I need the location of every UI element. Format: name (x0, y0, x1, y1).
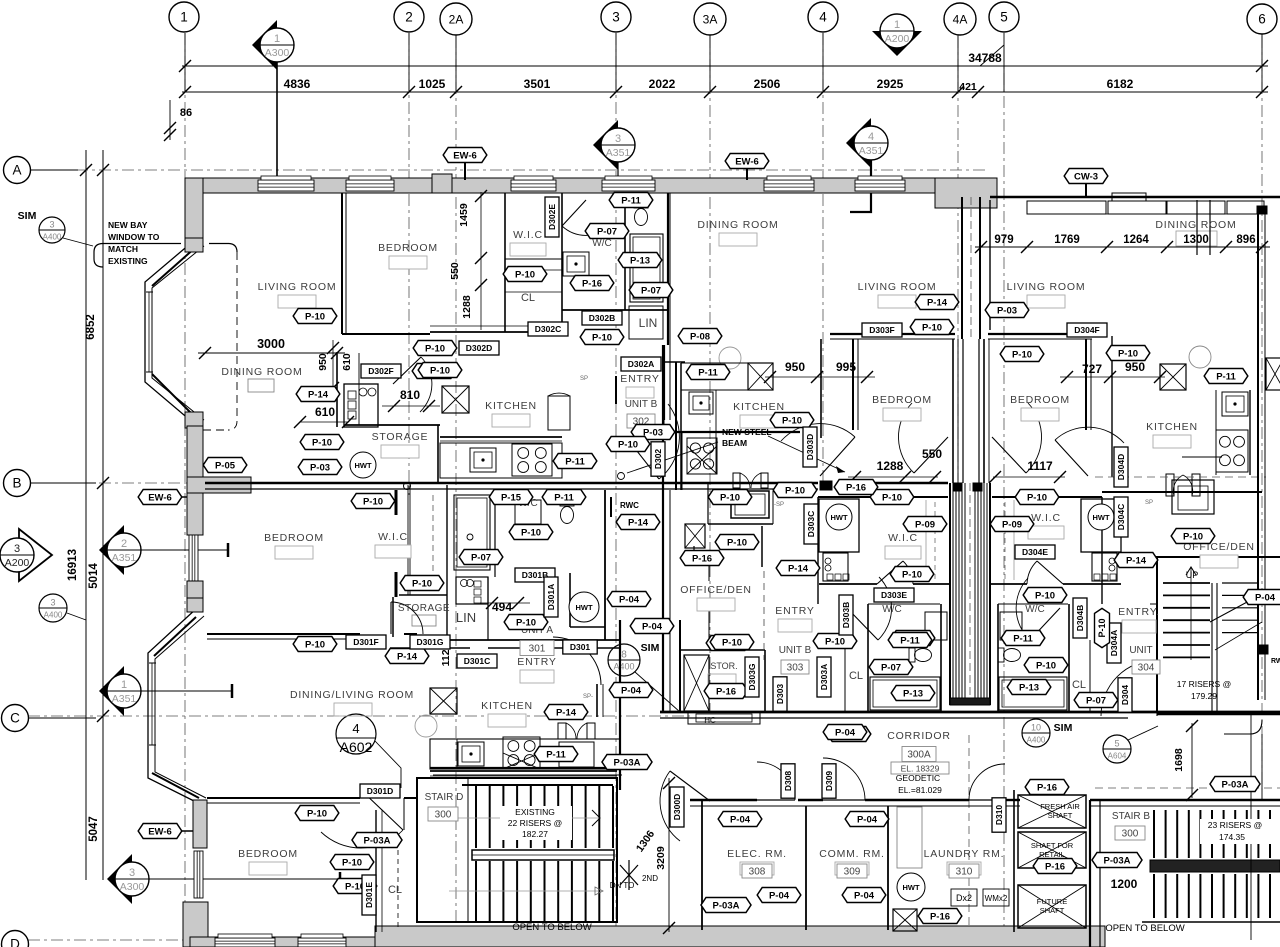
svg-text:6: 6 (1258, 12, 1266, 27)
svg-text:P-10: P-10 (618, 439, 638, 450)
svg-text:1769: 1769 (1054, 234, 1080, 246)
svg-text:CORRIDOR: CORRIDOR (887, 730, 951, 742)
svg-text:550: 550 (449, 262, 461, 280)
svg-text:182.27: 182.27 (522, 829, 548, 839)
svg-text:EXISTING: EXISTING (108, 256, 148, 266)
svg-text:HWT: HWT (830, 513, 847, 522)
svg-text:EXISTING: EXISTING (515, 807, 555, 817)
svg-text:P-03A: P-03A (1104, 855, 1131, 866)
svg-text:-SP: -SP (774, 502, 784, 508)
svg-text:P-07: P-07 (641, 285, 661, 296)
svg-text:1: 1 (894, 19, 900, 31)
svg-text:D309: D309 (824, 771, 834, 792)
svg-text:4: 4 (352, 721, 359, 736)
svg-text:P-10: P-10 (1118, 348, 1138, 359)
svg-text:STORAGE: STORAGE (398, 603, 450, 614)
svg-text:3: 3 (612, 10, 620, 25)
svg-text:P-15: P-15 (501, 492, 522, 503)
svg-text:2ND: 2ND (642, 874, 658, 883)
svg-text:D303C: D303C (806, 511, 816, 537)
svg-text:P-14: P-14 (556, 707, 577, 718)
svg-text:995: 995 (836, 360, 856, 374)
svg-text:303: 303 (787, 663, 804, 674)
svg-text:P-10: P-10 (720, 492, 740, 503)
svg-text:P-14: P-14 (1126, 555, 1147, 566)
svg-text:309: 309 (844, 867, 861, 878)
svg-text:Dx2: Dx2 (956, 893, 972, 903)
svg-text:3209: 3209 (655, 846, 667, 870)
svg-text:P-10: P-10 (782, 415, 802, 426)
svg-text:979: 979 (994, 234, 1013, 246)
svg-text:D301A: D301A (546, 584, 556, 610)
svg-text:8: 8 (621, 650, 627, 661)
svg-text:P-03A: P-03A (713, 900, 740, 911)
svg-text:D310: D310 (994, 805, 1004, 826)
svg-text:P-09: P-09 (1002, 519, 1022, 530)
svg-text:P-13: P-13 (1019, 682, 1039, 693)
svg-text:P-10: P-10 (515, 269, 535, 280)
svg-text:A400: A400 (1027, 736, 1046, 745)
svg-text:P-10: P-10 (521, 527, 541, 538)
svg-text:D301F: D301F (353, 637, 379, 647)
svg-text:CL: CL (388, 884, 402, 896)
svg-text:1: 1 (180, 10, 188, 25)
svg-text:SP-: SP- (583, 694, 593, 700)
svg-text:HC: HC (704, 716, 716, 725)
svg-text:EW-6: EW-6 (148, 826, 172, 837)
svg-text:SHAFT FOR: SHAFT FOR (1031, 841, 1074, 850)
svg-text:1: 1 (121, 679, 127, 691)
svg-text:P-11: P-11 (1216, 371, 1236, 382)
svg-text:D303E: D303E (881, 590, 907, 600)
svg-text:3: 3 (615, 133, 621, 145)
svg-text:COMM. RM.: COMM. RM. (819, 848, 885, 860)
svg-text:P-03A: P-03A (1222, 779, 1249, 790)
svg-text:P-10: P-10 (305, 311, 325, 322)
svg-text:CW-3: CW-3 (1074, 171, 1098, 182)
svg-text:P-10: P-10 (363, 496, 383, 507)
svg-text:P-10: P-10 (425, 343, 445, 354)
svg-text:ENTRY: ENTRY (517, 656, 556, 668)
svg-text:SIM: SIM (641, 642, 660, 654)
svg-text:D301G: D301G (417, 637, 444, 647)
svg-text:308: 308 (749, 867, 766, 878)
svg-text:P-10: P-10 (305, 639, 325, 650)
svg-text:810: 810 (400, 388, 420, 402)
svg-text:CL: CL (849, 670, 863, 682)
svg-text:RWC: RWC (620, 501, 639, 510)
svg-text:KITCHEN: KITCHEN (481, 700, 533, 712)
svg-text:A351: A351 (112, 552, 137, 564)
svg-text:3501: 3501 (524, 77, 551, 91)
svg-text:P-10: P-10 (722, 637, 742, 648)
svg-text:SP: SP (1145, 500, 1153, 506)
svg-text:950: 950 (785, 360, 805, 374)
svg-text:5014: 5014 (88, 563, 100, 589)
svg-text:P-03A: P-03A (614, 757, 641, 768)
svg-text:W.I.C: W.I.C (1031, 512, 1061, 524)
svg-text:UNIT: UNIT (1129, 645, 1152, 656)
svg-text:D304B: D304B (1075, 605, 1085, 631)
svg-text:W.I.C: W.I.C (888, 532, 918, 544)
svg-text:P-03: P-03 (997, 305, 1017, 316)
svg-text:P-04: P-04 (642, 621, 663, 632)
svg-text:D302D: D302D (466, 343, 492, 353)
svg-text:P-05: P-05 (215, 460, 236, 471)
svg-text:3: 3 (14, 543, 20, 555)
svg-text:P-10: P-10 (592, 332, 612, 343)
svg-text:D303D: D303D (805, 434, 815, 460)
svg-text:A400: A400 (43, 233, 62, 242)
svg-text:D303F: D303F (869, 325, 895, 335)
svg-text:UNIT B: UNIT B (779, 645, 812, 656)
svg-text:2022: 2022 (649, 77, 676, 91)
svg-text:P-04: P-04 (619, 594, 640, 605)
svg-text:310: 310 (956, 867, 973, 878)
svg-text:2A: 2A (449, 13, 464, 27)
svg-text:ENTRY: ENTRY (620, 373, 659, 385)
svg-text:1264: 1264 (1123, 234, 1149, 246)
svg-text:5: 5 (1114, 739, 1119, 749)
svg-text:EL. 18329: EL. 18329 (901, 764, 940, 774)
svg-text:4A: 4A (953, 13, 968, 27)
svg-text:P-07: P-07 (881, 662, 901, 673)
svg-text:HWT: HWT (902, 883, 919, 892)
svg-text:P-14: P-14 (308, 389, 329, 400)
svg-text:4: 4 (868, 131, 874, 143)
svg-text:5047: 5047 (88, 816, 100, 842)
svg-text:D303B: D303B (841, 602, 851, 628)
svg-text:HWT: HWT (575, 603, 592, 612)
svg-text:P-13: P-13 (630, 255, 650, 266)
svg-text:22 RISERS @: 22 RISERS @ (508, 818, 562, 828)
svg-text:CL: CL (1072, 679, 1086, 691)
svg-text:STAIR D: STAIR D (425, 792, 464, 803)
svg-text:DINING ROOM: DINING ROOM (221, 366, 302, 378)
svg-text:P-04: P-04 (1255, 592, 1276, 603)
svg-text:DINING/LIVING ROOM: DINING/LIVING ROOM (290, 689, 414, 701)
svg-text:6852: 6852 (85, 314, 97, 340)
svg-text:P-11: P-11 (1013, 633, 1033, 644)
svg-text:W/C: W/C (592, 238, 611, 249)
svg-text:300: 300 (435, 810, 452, 821)
svg-text:SIM: SIM (1054, 722, 1073, 734)
svg-text:LAUNDRY RM.: LAUNDRY RM. (924, 848, 1005, 860)
svg-text:D300D: D300D (672, 794, 682, 820)
svg-text:1288: 1288 (461, 295, 473, 319)
svg-text:P-14: P-14 (397, 651, 418, 662)
svg-text:OPEN TO BELOW: OPEN TO BELOW (512, 922, 591, 933)
svg-text:D302F: D302F (368, 366, 394, 376)
svg-text:BEDROOM: BEDROOM (238, 848, 298, 860)
svg-text:A351: A351 (859, 145, 884, 157)
svg-text:A604: A604 (1108, 752, 1127, 761)
svg-text:BEAM: BEAM (722, 438, 747, 448)
svg-text:P-10: P-10 (1036, 660, 1056, 671)
svg-text:A200: A200 (885, 33, 910, 45)
svg-text:ENTRY.: ENTRY. (1118, 606, 1160, 618)
svg-text:P-11: P-11 (554, 492, 574, 503)
svg-text:1288: 1288 (877, 459, 904, 473)
svg-text:A602: A602 (340, 739, 373, 755)
svg-text:OPEN TO BELOW: OPEN TO BELOW (1105, 923, 1184, 934)
svg-text:1117: 1117 (1027, 459, 1053, 473)
svg-text:D304F: D304F (1074, 325, 1100, 335)
svg-text:2506: 2506 (754, 77, 781, 91)
svg-text:P-16: P-16 (582, 278, 602, 289)
svg-text:D308: D308 (783, 771, 793, 792)
svg-text:3: 3 (50, 598, 55, 608)
svg-text:P-11: P-11 (621, 195, 641, 206)
svg-text:4: 4 (819, 10, 827, 25)
svg-text:NEW BAY: NEW BAY (108, 220, 148, 230)
svg-text:LIVING ROOM: LIVING ROOM (258, 281, 337, 293)
svg-text:5: 5 (1000, 10, 1008, 25)
svg-text:D303G: D303G (747, 663, 757, 690)
svg-text:1200: 1200 (1111, 877, 1138, 891)
svg-text:A400: A400 (44, 611, 63, 620)
svg-text:3000: 3000 (257, 337, 285, 351)
svg-text:P-03A: P-03A (364, 835, 391, 846)
svg-text:P-04: P-04 (857, 814, 878, 825)
svg-text:P-10: P-10 (1027, 492, 1047, 503)
svg-text:P-11: P-11 (565, 456, 585, 467)
svg-text:ENTRY: ENTRY (775, 605, 814, 617)
svg-text:A: A (12, 163, 21, 178)
svg-text:STORAGE: STORAGE (372, 431, 429, 443)
svg-text:A300: A300 (265, 47, 290, 59)
svg-text:1300: 1300 (1183, 234, 1209, 246)
svg-text:4836: 4836 (284, 77, 311, 91)
svg-text:P-07: P-07 (597, 226, 617, 237)
svg-text:STOR.: STOR. (710, 661, 737, 671)
svg-text:SP: SP (580, 376, 588, 382)
svg-text:P-04: P-04 (769, 890, 790, 901)
svg-text:W.I.C: W.I.C (513, 229, 543, 241)
svg-text:1025: 1025 (419, 77, 446, 91)
svg-text:P-13: P-13 (903, 688, 923, 699)
svg-text:950: 950 (1125, 360, 1145, 374)
svg-text:P-04: P-04 (854, 890, 875, 901)
svg-text:421: 421 (959, 81, 977, 93)
svg-text:P-10: P-10 (342, 857, 362, 868)
svg-text:179.29: 179.29 (1191, 691, 1217, 701)
svg-text:P-04: P-04 (730, 814, 751, 825)
svg-text:LIVING ROOM: LIVING ROOM (1007, 281, 1086, 293)
svg-text:MATCH: MATCH (108, 244, 138, 254)
svg-text:W.I.C: W.I.C (378, 531, 408, 543)
svg-text:P-07: P-07 (1086, 695, 1106, 706)
svg-text:2: 2 (405, 10, 413, 25)
svg-text:A351: A351 (112, 693, 137, 705)
svg-text:CL: CL (521, 292, 535, 304)
svg-text:P-14: P-14 (788, 563, 809, 574)
svg-text:1: 1 (274, 33, 280, 45)
svg-text:P-11: P-11 (900, 635, 920, 646)
svg-text:D302E: D302E (547, 204, 557, 230)
svg-text:GEODETIC: GEODETIC (896, 773, 940, 783)
svg-text:KITCHEN: KITCHEN (733, 401, 785, 413)
svg-text:P-10: P-10 (785, 485, 805, 496)
svg-text:P-11: P-11 (546, 749, 566, 760)
svg-text:NEW STEEL: NEW STEEL (722, 427, 772, 437)
svg-text:D: D (10, 937, 20, 947)
svg-text:727: 727 (1082, 362, 1102, 376)
svg-text:P-08: P-08 (690, 331, 710, 342)
svg-text:A351: A351 (606, 147, 631, 159)
svg-text:D303A: D303A (819, 664, 829, 690)
svg-text:P-10: P-10 (412, 578, 432, 589)
svg-text:LIVING ROOM: LIVING ROOM (858, 281, 937, 293)
svg-text:KITCHEN: KITCHEN (485, 400, 537, 412)
svg-text:EW-6: EW-6 (735, 156, 759, 167)
svg-text:3: 3 (49, 220, 54, 230)
svg-text:FRESH AIR: FRESH AIR (1040, 802, 1080, 811)
svg-text:D304: D304 (1120, 685, 1130, 706)
svg-text:D304E: D304E (1022, 547, 1048, 557)
svg-text:P-04: P-04 (621, 685, 642, 696)
svg-text:WINDOW TO: WINDOW TO (108, 232, 160, 242)
svg-text:P-10: P-10 (312, 437, 332, 448)
svg-text:2: 2 (121, 538, 127, 550)
svg-text:P-10: P-10 (825, 636, 845, 647)
svg-text:301: 301 (529, 644, 546, 655)
svg-text:300: 300 (1122, 829, 1139, 840)
svg-text:D301D: D301D (367, 786, 393, 796)
svg-text:P-10: P-10 (307, 808, 327, 819)
svg-text:16913: 16913 (67, 549, 79, 581)
svg-text:ELEC. RM.: ELEC. RM. (727, 848, 787, 860)
svg-text:B: B (12, 476, 21, 491)
svg-text:D302B: D302B (589, 313, 615, 323)
svg-text:174.35: 174.35 (1219, 832, 1245, 842)
svg-text:1698: 1698 (1173, 748, 1185, 772)
svg-text:P-09: P-09 (915, 519, 935, 530)
svg-text:23 RISERS @: 23 RISERS @ (1208, 820, 1262, 830)
svg-text:34788: 34788 (968, 51, 1002, 65)
svg-text:LIN: LIN (639, 316, 658, 330)
svg-text:A200: A200 (5, 557, 30, 569)
svg-text:P-10: P-10 (902, 569, 922, 580)
svg-text:17 RISERS @: 17 RISERS @ (1177, 679, 1231, 689)
svg-text:BEDROOM: BEDROOM (1010, 394, 1070, 406)
svg-text:W/C: W/C (882, 604, 901, 615)
svg-text:P-16: P-16 (1037, 782, 1057, 793)
svg-text:HWT: HWT (354, 461, 371, 470)
svg-text:610: 610 (341, 353, 353, 371)
svg-text:DN TO: DN TO (610, 881, 635, 890)
svg-text:UP: UP (1186, 570, 1199, 580)
svg-text:STAIR B: STAIR B (1112, 811, 1150, 822)
svg-text:BEDROOM: BEDROOM (378, 242, 438, 254)
svg-text:LIN: LIN (456, 610, 476, 625)
svg-text:3A: 3A (703, 13, 718, 27)
svg-text:P-03: P-03 (310, 462, 330, 473)
svg-text:P-14: P-14 (927, 297, 948, 308)
svg-text:P-10: P-10 (922, 322, 942, 333)
svg-text:P-10: P-10 (727, 537, 747, 548)
svg-text:P-03: P-03 (643, 427, 663, 438)
svg-text:HWT: HWT (1092, 513, 1109, 522)
svg-text:550: 550 (922, 447, 942, 461)
svg-text:D301C: D301C (464, 656, 490, 666)
svg-text:P-16: P-16 (930, 911, 950, 922)
svg-text:P-07: P-07 (471, 552, 491, 563)
svg-text:D304A: D304A (1109, 630, 1119, 656)
svg-text:D301: D301 (570, 642, 591, 652)
svg-text:WMx2: WMx2 (985, 894, 1008, 903)
svg-text:2925: 2925 (877, 77, 904, 91)
svg-text:P-10: P-10 (516, 617, 536, 628)
svg-text:OFFICE/DEN: OFFICE/DEN (680, 584, 752, 596)
svg-text:BEDROOM: BEDROOM (872, 394, 932, 406)
svg-text:DINING ROOM: DINING ROOM (697, 219, 778, 231)
svg-text:3: 3 (129, 867, 135, 879)
svg-text:SIM: SIM (18, 210, 37, 222)
svg-text:950: 950 (317, 353, 329, 371)
svg-text:P-16: P-16 (716, 686, 736, 697)
svg-text:P-10: P-10 (430, 365, 450, 376)
svg-text:EW-6: EW-6 (453, 150, 477, 161)
svg-text:EW-6: EW-6 (148, 492, 172, 503)
svg-text:DINING ROOM: DINING ROOM (1155, 219, 1236, 231)
svg-text:P-10: P-10 (1035, 590, 1055, 601)
svg-text:D304D: D304D (1116, 454, 1126, 480)
svg-text:304: 304 (1138, 663, 1155, 674)
svg-text:FUTURE: FUTURE (1037, 897, 1067, 906)
svg-text:P-11: P-11 (698, 367, 718, 378)
svg-text:610: 610 (315, 405, 335, 419)
svg-text:P-10: P-10 (1012, 349, 1032, 360)
svg-text:D302C: D302C (535, 324, 561, 334)
svg-text:SHAFT: SHAFT (1040, 906, 1065, 915)
svg-text:RETAIL: RETAIL (1039, 850, 1065, 859)
svg-text:P-16: P-16 (846, 482, 866, 493)
svg-text:896: 896 (1236, 234, 1255, 246)
svg-text:10: 10 (1031, 723, 1041, 733)
svg-text:6182: 6182 (1107, 77, 1134, 91)
svg-text:C: C (10, 711, 20, 726)
svg-text:P-14: P-14 (628, 517, 649, 528)
svg-text:A300: A300 (120, 881, 145, 893)
svg-text:P-10: P-10 (1097, 618, 1107, 637)
svg-text:300A: 300A (907, 750, 931, 761)
svg-text:RWC: RWC (1271, 658, 1280, 665)
svg-text:D302A: D302A (628, 359, 654, 369)
svg-text:BEDROOM: BEDROOM (264, 532, 324, 544)
svg-text:EL.=81.029: EL.=81.029 (898, 785, 942, 795)
svg-text:494: 494 (492, 600, 512, 614)
svg-text:KITCHEN: KITCHEN (1146, 421, 1198, 433)
svg-text:P-16: P-16 (1045, 861, 1065, 872)
svg-text:D303: D303 (775, 684, 785, 705)
svg-text:W/C: W/C (1025, 604, 1044, 615)
svg-text:UNIT B: UNIT B (625, 399, 658, 410)
svg-text:A400: A400 (613, 662, 634, 672)
svg-text:86: 86 (180, 107, 192, 119)
svg-text:P-10: P-10 (1183, 531, 1203, 542)
svg-text:P-16: P-16 (692, 553, 712, 564)
svg-text:D302: D302 (653, 449, 663, 470)
svg-text:SHAFT: SHAFT (1048, 811, 1073, 820)
svg-text:P-04: P-04 (835, 727, 856, 738)
svg-text:D304C: D304C (1116, 504, 1126, 530)
svg-text:1459: 1459 (458, 203, 470, 227)
svg-text:P-10: P-10 (882, 492, 902, 503)
svg-text:D301E: D301E (364, 882, 374, 908)
